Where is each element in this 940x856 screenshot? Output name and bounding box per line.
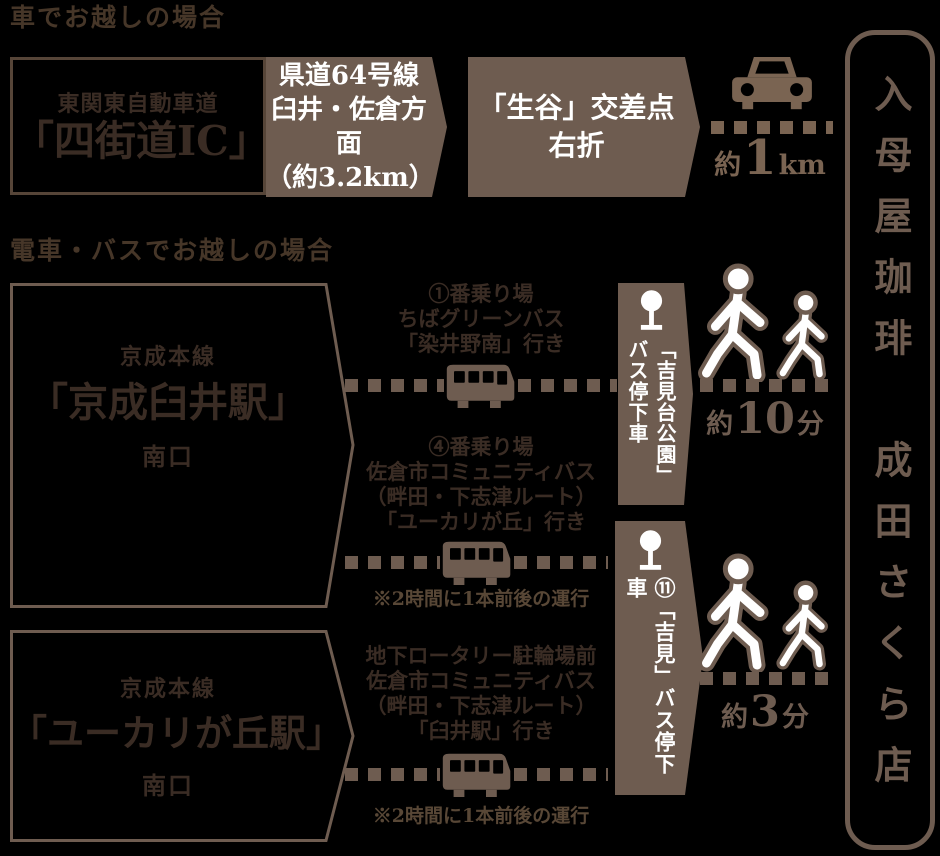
car-step-2: 「生谷」交差点 右折 — [468, 57, 685, 197]
shop-banner: 入母屋珈琲 成田さくら店 — [845, 30, 935, 850]
dash-right — [514, 768, 609, 781]
bus-route-c-dash — [345, 752, 608, 797]
dash-left — [345, 379, 444, 392]
dash-left — [345, 556, 440, 569]
walk-prefix: 約 — [706, 402, 733, 441]
walk-prefix: 約 — [721, 695, 748, 734]
bus-stop-a-content: 「吉見台公園」 バス停下車 — [618, 290, 684, 501]
walk-a-dash — [700, 379, 833, 392]
yotsukaido-ic-box: 東関東自動車道 「四街道IC」 — [10, 57, 266, 195]
distance-unit: km — [779, 150, 826, 181]
bus-route-a-text: ①番乗り場 ちばグリーンバス 「染井野南」行き — [345, 281, 617, 356]
bus-stop-a-label: 「吉見台公園」 バス停下車 — [623, 339, 679, 501]
bus-route-b-note: ※2時間に1本前後の運行 — [345, 584, 617, 611]
yukarigaoka-station-name: 「ユーカリが丘駅」 — [10, 711, 326, 755]
walk-value: 10 — [735, 398, 795, 441]
access-map: 車でお越しの場合 東関東自動車道 「四街道IC」 県道64号線 臼井・佐倉方面 … — [0, 0, 940, 856]
dash-left — [345, 768, 440, 781]
car-icon — [732, 57, 812, 115]
usui-exit: 南口 — [142, 437, 194, 472]
walk-b-dash — [700, 672, 833, 685]
bus-icon — [442, 540, 512, 585]
bus-route-a-dash — [345, 363, 617, 408]
yukarigaoka-station-label: 京成本線 「ユーカリが丘駅」 南口 — [10, 630, 326, 842]
car-section-heading: 車でお越しの場合 — [10, 3, 226, 33]
usui-station-label: 京成本線 「京成臼井駅」 南口 — [10, 283, 326, 608]
transit-section-heading: 電車・バスでお越しの場合 — [10, 236, 334, 266]
walking-people-icon — [698, 263, 834, 382]
bus-icon — [442, 752, 512, 797]
walking-people-icon — [698, 553, 834, 672]
car-distance-label: 約1km — [695, 134, 845, 182]
interchange-name: 「四街道IC」 — [13, 118, 263, 165]
bus-route-b-dash — [345, 540, 608, 585]
bus-route-c-text: 地下ロータリー駐輪場前 佐倉市コミュニティバス （畔田・下志津ルート） 「臼井駅… — [345, 643, 617, 743]
dash-right — [518, 379, 617, 392]
walk-unit: 分 — [782, 695, 809, 734]
bus-stop-b-label: ⑪「吉見」バス停下車 — [622, 577, 678, 795]
bus-route-c-note: ※2時間に1本前後の運行 — [345, 801, 617, 828]
walk-unit: 分 — [797, 402, 824, 441]
bus-stop-icon — [638, 290, 665, 331]
dash-right — [514, 556, 609, 569]
expressway-name: 東関東自動車道 — [57, 86, 218, 118]
walk-b-time: 約3分 — [690, 691, 840, 734]
car-step-1: 県道64号線 臼井・佐倉方面 （約3.2km） — [266, 57, 432, 197]
usui-line-name: 京成本線 — [120, 339, 216, 371]
yukarigaoka-line-name: 京成本線 — [120, 671, 216, 703]
walk-a-time: 約10分 — [690, 398, 840, 441]
yukarigaoka-exit: 南口 — [142, 766, 194, 801]
shop-name: 入母屋珈琲 成田さくら店 — [871, 74, 909, 806]
usui-station-name: 「京成臼井駅」 — [28, 379, 308, 427]
walk-value: 3 — [750, 691, 780, 734]
bus-route-b-text: ④番乗り場 佐倉市コミュニティバス （畔田・下志津ルート） 「ユーカリが丘」行き — [345, 434, 617, 534]
distance-value: 1 — [743, 134, 776, 182]
bus-stop-b-content: ⑪「吉見」バス停下車 — [615, 530, 685, 795]
distance-prefix: 約 — [714, 143, 741, 182]
bus-stop-icon — [637, 530, 664, 571]
bus-icon — [446, 363, 516, 408]
